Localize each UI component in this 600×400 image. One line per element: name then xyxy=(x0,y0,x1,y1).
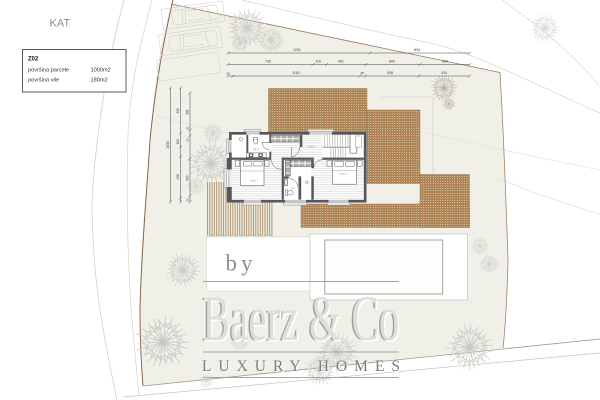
svg-text:površina vile: površina vile xyxy=(28,78,59,84)
svg-text:434: 434 xyxy=(441,71,447,75)
svg-text:1241: 1241 xyxy=(293,48,301,52)
svg-text:26: 26 xyxy=(226,71,230,75)
svg-text:508: 508 xyxy=(387,71,393,75)
svg-text:116: 116 xyxy=(315,60,321,64)
svg-text:by: by xyxy=(226,251,257,276)
svg-text:KAT: KAT xyxy=(50,17,71,29)
svg-text:1163: 1163 xyxy=(292,71,300,75)
svg-text:1633: 1633 xyxy=(166,141,170,149)
svg-text:381: 381 xyxy=(186,109,190,115)
svg-text:434: 434 xyxy=(442,60,448,64)
svg-text:834: 834 xyxy=(414,48,420,52)
svg-text:800: 800 xyxy=(389,60,395,64)
svg-text:91: 91 xyxy=(186,126,190,130)
svg-text:961: 961 xyxy=(338,60,344,64)
svg-text:116: 116 xyxy=(176,139,180,144)
svg-text:436: 436 xyxy=(176,174,180,180)
svg-text:Baerz & Co: Baerz & Co xyxy=(203,283,400,355)
svg-text:26: 26 xyxy=(186,138,190,142)
svg-text:48: 48 xyxy=(360,71,364,75)
svg-text:730: 730 xyxy=(265,60,271,64)
svg-text:kup.1: kup.1 xyxy=(253,147,260,151)
svg-text:soba 1: soba 1 xyxy=(250,179,258,183)
svg-text:soba 2: soba 2 xyxy=(339,172,347,176)
svg-text:26: 26 xyxy=(186,198,190,202)
svg-text:1000m2: 1000m2 xyxy=(91,68,111,74)
svg-text:569: 569 xyxy=(186,175,190,181)
svg-text:površina parcele: površina parcele xyxy=(28,68,69,74)
svg-text:396: 396 xyxy=(176,108,180,114)
svg-text:hodnik: hodnik xyxy=(307,144,315,148)
svg-text:Z02: Z02 xyxy=(28,57,39,63)
svg-text:180m2: 180m2 xyxy=(91,78,108,84)
